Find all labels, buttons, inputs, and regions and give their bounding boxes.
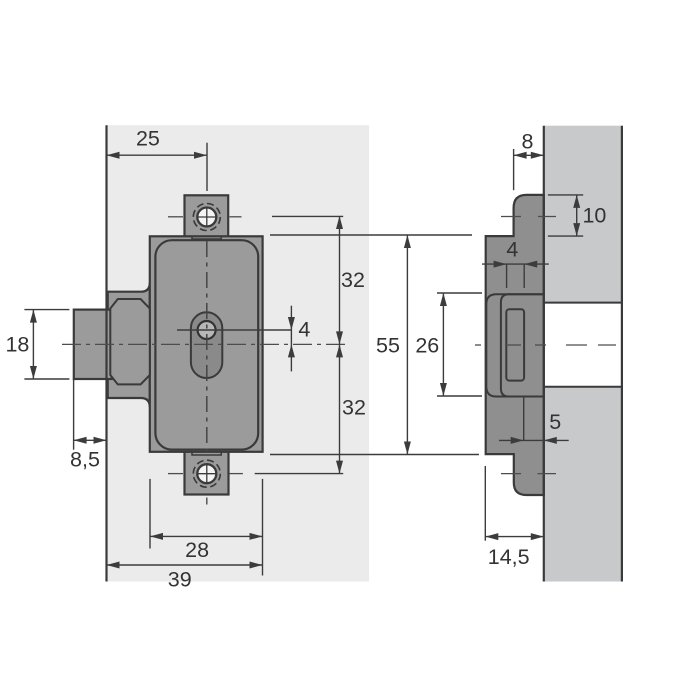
svg-text:32: 32	[341, 268, 365, 292]
svg-text:10: 10	[582, 204, 606, 228]
svg-text:14,5: 14,5	[488, 545, 530, 569]
svg-text:4: 4	[506, 237, 518, 261]
svg-text:5: 5	[549, 410, 561, 434]
svg-text:39: 39	[168, 567, 192, 591]
svg-text:18: 18	[5, 333, 29, 357]
svg-text:25: 25	[136, 127, 160, 151]
svg-text:32: 32	[342, 395, 366, 419]
svg-text:8: 8	[522, 129, 534, 153]
svg-text:26: 26	[415, 333, 439, 357]
svg-text:28: 28	[185, 538, 209, 562]
svg-text:4: 4	[298, 317, 310, 341]
svg-text:55: 55	[376, 333, 400, 357]
svg-text:8,5: 8,5	[70, 448, 100, 472]
